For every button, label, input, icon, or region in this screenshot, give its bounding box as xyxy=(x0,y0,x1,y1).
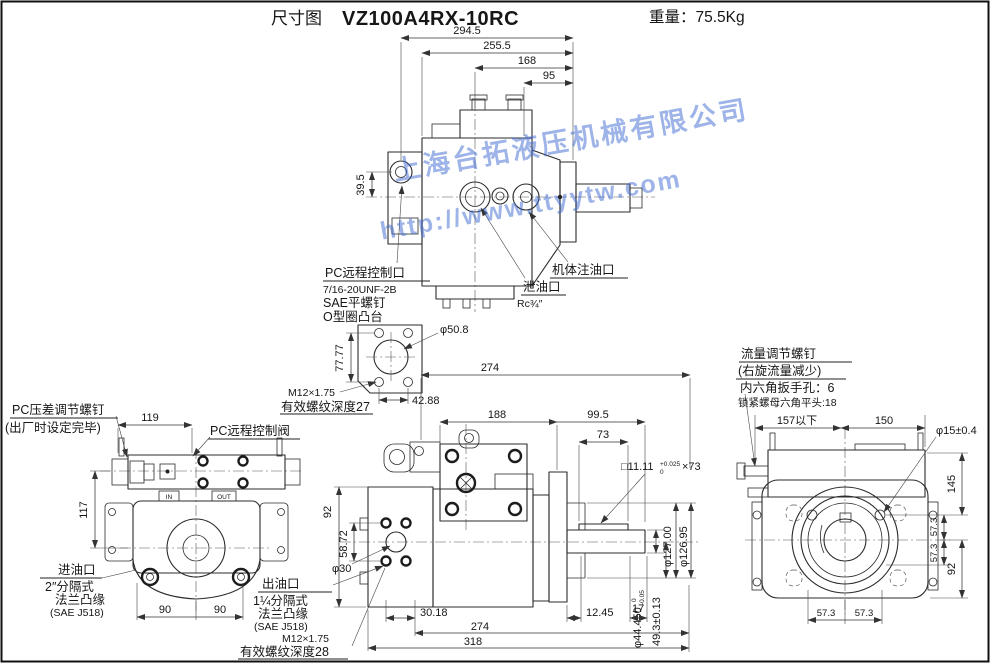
dim-label: 92 xyxy=(946,563,958,575)
out-marking: OUT xyxy=(217,494,231,501)
dim-label: 58.72 xyxy=(338,530,350,558)
dim-label: 17 xyxy=(632,603,644,615)
dim-label: 157以下 xyxy=(777,415,817,427)
dim-label: 57.3 xyxy=(929,518,940,537)
dim-label: 57.3 xyxy=(817,608,836,619)
plug-dot xyxy=(558,195,562,199)
dim-label: 39.5 xyxy=(355,174,367,195)
dim-label-phi30: φ30 xyxy=(332,563,351,575)
dim-label: 150 xyxy=(875,415,893,427)
key-dim: □11.11 xyxy=(621,461,654,473)
dim-label: 30.18 xyxy=(420,607,448,619)
page-border xyxy=(2,2,989,662)
drain-size: Rc¾″ xyxy=(517,298,543,310)
locknut-note: 锁紧螺母六角平头:18 xyxy=(738,396,837,409)
shaft-tol-upper: 0 xyxy=(631,598,638,602)
weight-label: 重量：75.5Kg xyxy=(649,8,745,26)
pc-port-screw: SAE平螺钉 xyxy=(323,296,386,310)
dim-label: 57.3 xyxy=(855,608,874,619)
drain-label: 泄油口 xyxy=(523,280,561,294)
dim-label: 92 xyxy=(322,506,334,518)
outlet-thread: M12×1.75 xyxy=(282,633,329,645)
outlet-label: 出油口 xyxy=(262,577,300,591)
valve-port-dot xyxy=(166,470,170,474)
outlet-thread-depth: 有效螺纹深度28 xyxy=(240,644,329,659)
dim-label: 99.5 xyxy=(587,409,608,421)
model-number: VZ100A4RX-10RC xyxy=(342,8,519,30)
dim-label: 90 xyxy=(214,604,226,616)
remote-valve-label: PC远程控制阀 xyxy=(210,423,290,438)
dim-label: 90 xyxy=(159,604,171,616)
dim-label: φ127.00 xyxy=(662,526,674,567)
shaft-dia-label: φ44.450 0 -0.05 xyxy=(631,590,646,648)
pc-port-boss: O型圈凸台 xyxy=(323,309,383,324)
in-marking: IN xyxy=(166,494,173,501)
flow-adjust-note: (右旋流量减少) xyxy=(738,363,821,378)
outlet-type: 1¼分隔式 xyxy=(253,594,308,608)
dim-label: φ50.8 xyxy=(440,324,469,336)
hex-socket-note: 内六角扳手孔：6 xyxy=(740,381,835,395)
drawing-type-label: 尺寸图 xyxy=(271,9,322,28)
dim-label: 255.5 xyxy=(483,40,511,52)
key-length: ×73 xyxy=(682,461,701,473)
dim-label: 274 xyxy=(471,621,489,633)
dim-label-phi15: φ15±0.4 xyxy=(936,425,977,437)
inlet-label: 进油口 xyxy=(58,563,96,577)
thread-depth: 有效螺纹深度27 xyxy=(281,399,370,414)
inlet-standard: (SAE J518) xyxy=(50,607,104,619)
dim-label: 188 xyxy=(488,409,506,421)
dim-label: 57.3 xyxy=(929,544,940,563)
outlet-standard: (SAE J518) xyxy=(254,621,308,633)
pc-port-thread: 7/16-20UNF-2B xyxy=(323,284,397,296)
key-tol-upper: +0.025 xyxy=(660,461,680,468)
key-tol-lower: 0 xyxy=(660,469,664,476)
dim-label: 145 xyxy=(946,475,958,493)
dim-label: 168 xyxy=(518,55,536,67)
dim-label: 119 xyxy=(141,412,159,424)
outlet-flange: 法兰凸缘 xyxy=(258,607,309,621)
drawing-canvas: 尺寸图 VZ100A4RX-10RC 重量：75.5Kg xyxy=(0,0,990,663)
inlet-type: 2″分隔式 xyxy=(45,580,94,594)
dim-label: 274 xyxy=(481,362,499,374)
dim-label: 117 xyxy=(78,501,90,519)
dim-label: 95 xyxy=(543,70,555,82)
fill-label: 机体注油口 xyxy=(552,262,615,277)
dim-label: 294.5 xyxy=(453,25,481,37)
pc-port-label: PC远程控制口 xyxy=(325,265,405,280)
dim-label: 12.45 xyxy=(586,607,614,619)
dim-label: 318 xyxy=(464,636,482,648)
dim-label: 73 xyxy=(597,429,609,441)
pc-diff-adjust-note: (出厂时设定完毕) xyxy=(5,420,101,435)
dim-label: 77.77 xyxy=(334,344,346,372)
inlet-flange: 法兰凸缘 xyxy=(55,593,106,607)
dim-label: 42.88 xyxy=(412,395,440,407)
thread-spec: M12×1.75 xyxy=(288,387,335,399)
dimension-drawing-page: 尺寸图 VZ100A4RX-10RC 重量：75.5Kg xyxy=(0,0,990,663)
pc-diff-adjust-label: PC压差调节螺钉 xyxy=(12,403,105,417)
dim-label: φ126.95 xyxy=(678,526,690,567)
flow-adjust-label: 流量调节螺钉 xyxy=(741,347,817,361)
dim-label: 49.3±0.13 xyxy=(651,597,663,646)
